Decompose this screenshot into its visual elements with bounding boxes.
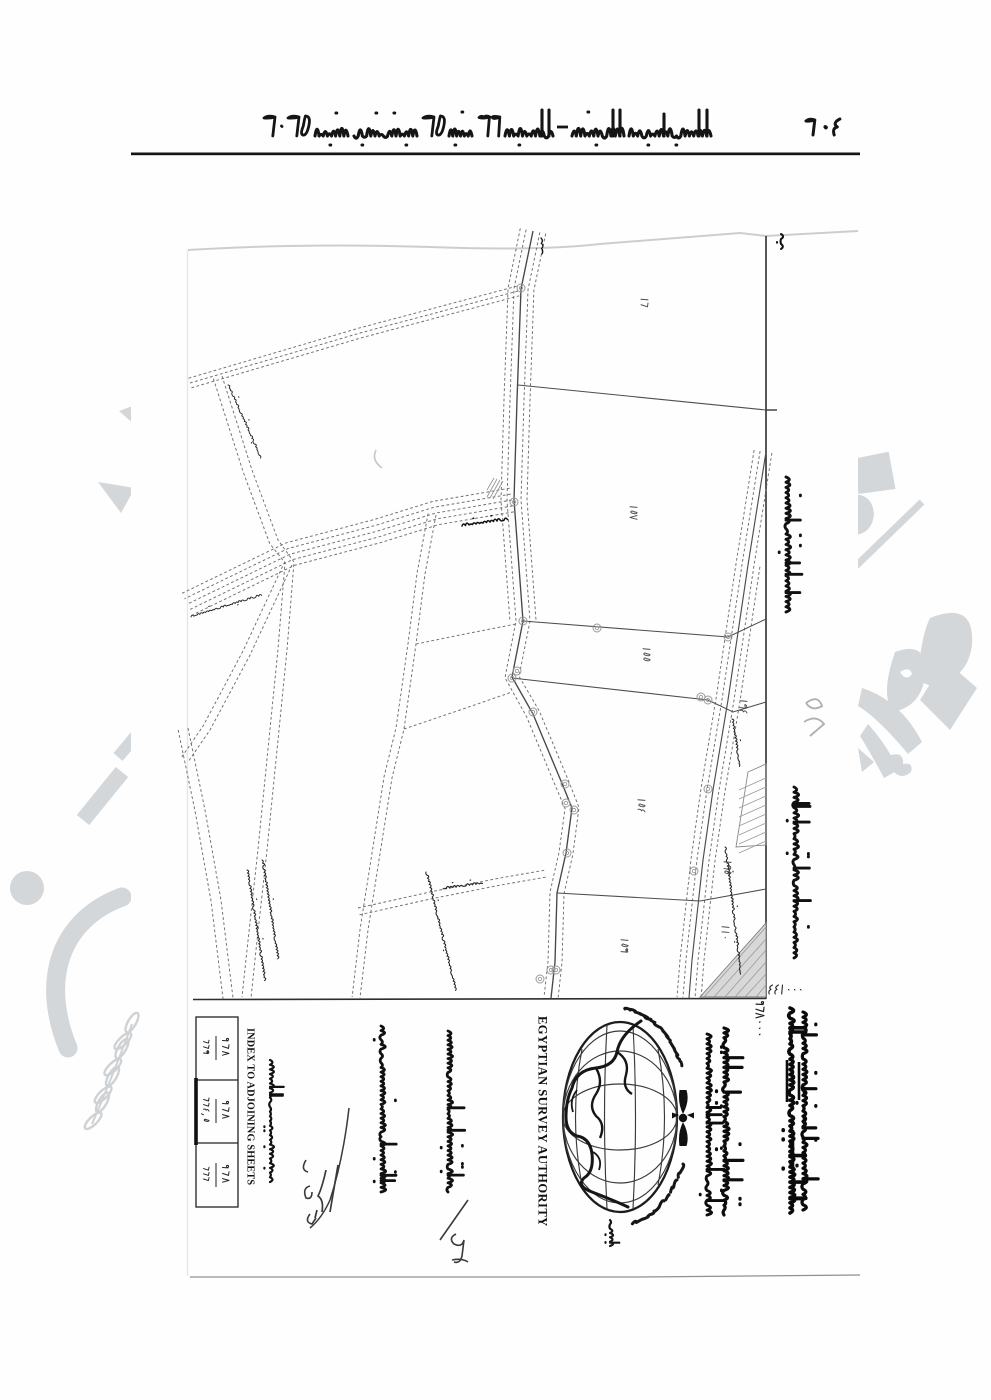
svg-text:EGYPTIAN SURVEY AUTHORITY: EGYPTIAN SURVEY AUTHORITY (536, 1016, 550, 1227)
svg-text:INDEX TO ADJOINING SHEETS: INDEX TO ADJOINING SHEETS (245, 1028, 256, 1185)
